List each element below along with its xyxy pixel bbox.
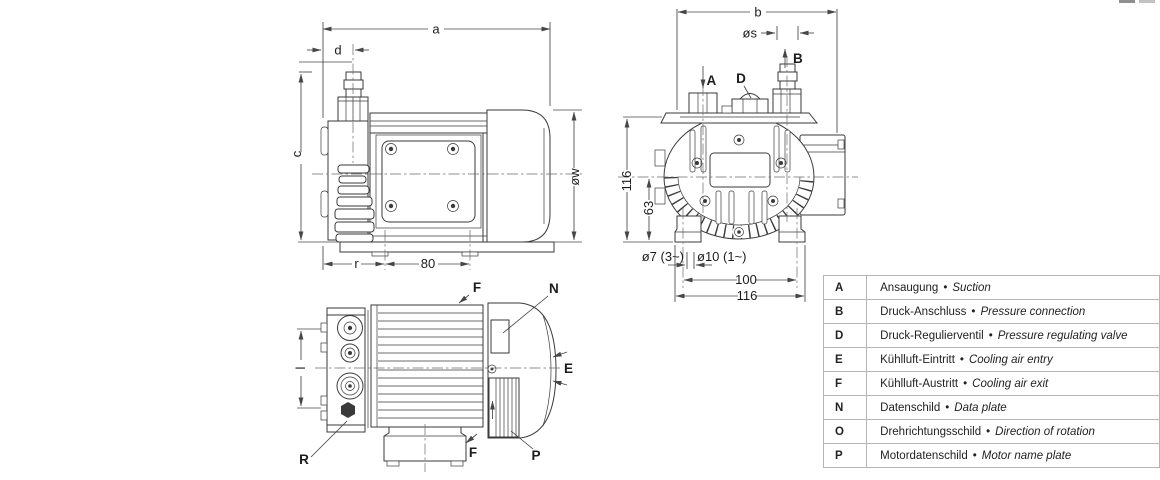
legend-de: Drehrichtungsschild [880,426,981,438]
dim-100-label: 100 [735,272,757,287]
dim-116v-label: 116 [619,171,634,192]
dimension-l: l [293,329,321,408]
legend-en: Data plate [954,402,1006,414]
mounting-plate [376,135,481,228]
legend-row: D Druck-Regulierventil•Pressure regulati… [824,324,1160,348]
dim-a-label: a [432,22,440,37]
motor-name-plate-area [489,378,519,437]
bullet-separator: • [971,306,975,318]
dim-d-label: d [334,43,341,58]
legend-key: E [824,348,867,372]
plate-screw [386,144,459,212]
dim-l-label: l [293,366,308,369]
callout-D: D [736,71,751,98]
legend-key: P [824,444,867,468]
label-F-top: F [473,280,481,295]
label-F-bottom: F [469,445,477,460]
top-view-drawing: F N E F P R l [280,275,602,480]
label-P: P [531,448,540,463]
legend-en: Cooling air entry [969,354,1053,366]
legend-row: P Motordatenschild•Motor name plate [824,444,1160,468]
dimension-80: 80 [386,256,469,271]
side-view-drawing: a d c øw r [285,5,615,290]
legend-en: Direction of rotation [995,426,1095,438]
legend-description: Drehrichtungsschild•Direction of rotatio… [867,420,1160,444]
label-E: E [564,361,573,376]
legend-en: Cooling air exit [972,378,1048,390]
legend-row: F Kühlluft-Austritt•Cooling air exit [824,372,1160,396]
cropped-ui-fragment [1119,0,1135,3]
legend-de: Kühlluft-Eintritt [880,354,955,366]
legend-de: Druck-Anschluss [880,306,966,318]
head-tab-left [655,150,665,166]
dimension-63: 63 [641,179,656,240]
dim-116h-label: 116 [737,288,758,303]
legend-de: Datenschild [880,402,940,414]
motor-side [483,110,550,242]
front-view-drawing: b øs A D B 116 [610,0,860,310]
regulating-valve [722,94,768,114]
legend-en: Motor name plate [982,450,1072,462]
dim-c-label: c [289,150,304,157]
dimension-d: d [299,43,369,73]
legend-en: Pressure regulating valve [998,330,1128,342]
callout-F-bottom: F [466,434,477,460]
legend-description: Druck-Anschluss•Pressure connection [867,300,1160,324]
dim-80-label: 80 [421,256,435,271]
legend-key: B [824,300,867,324]
callout-F-top: F [459,280,481,303]
legend-en: Suction [952,282,990,294]
pump-dimension-drawing-page: a d c øw r [0,0,1160,480]
label-D: D [736,71,746,86]
base-rail [340,242,554,256]
dimension-ow: øw [553,110,582,242]
label-A: A [707,73,717,88]
cropped-ui-fragment [1139,0,1155,3]
legend-de: Motordatenschild [880,450,968,462]
legend-table: A Ansaugung•Suction B Druck-Anschluss•Pr… [823,275,1160,468]
legend-description: Druck-Regulierventil•Pressure regulating… [867,324,1160,348]
legend-en: Pressure connection [980,306,1085,318]
dim-o7-label: ø7 (3~) [642,249,684,264]
callout-R: R [299,421,347,467]
legend-key: N [824,396,867,420]
bottom-foot [384,424,466,472]
bullet-separator: • [943,282,947,294]
legend-de: Ansaugung [880,282,938,294]
dim-os-label: øs [743,26,758,41]
bullet-separator: • [989,330,993,342]
legend-row: N Datenschild•Data plate [824,396,1160,420]
legend-key: D [824,324,867,348]
legend-row: B Druck-Anschluss•Pressure connection [824,300,1160,324]
bullet-separator: • [963,378,967,390]
pump-body-top [368,305,483,428]
legend-key: A [824,276,867,300]
bullet-separator: • [986,426,990,438]
dim-b-label: b [754,5,761,20]
legend-description: Kühlluft-Eintritt•Cooling air entry [867,348,1160,372]
legend-description: Motordatenschild•Motor name plate [867,444,1160,468]
legend-key: F [824,372,867,396]
dim-o10-label: ø10 (1~) [697,249,747,264]
bullet-separator: • [945,402,949,414]
dimension-os: øs [743,26,814,41]
legend-description: Datenschild•Data plate [867,396,1160,420]
label-N: N [549,281,559,296]
dim-63-label: 63 [641,201,656,215]
motor-top [488,303,556,438]
dim-r-label: r [354,256,359,271]
foot-hole-callouts: ø7 (3~) ø10 (1~) [642,249,747,269]
dimension-100: 100 [684,272,796,287]
legend-de: Kühlluft-Austritt [880,378,958,390]
legend-row: A Ansaugung•Suction [824,276,1160,300]
top-cover [661,113,817,123]
dim-ow-label: øw [567,168,582,186]
bullet-separator: • [973,450,977,462]
legend-key: O [824,420,867,444]
legend-description: Kühlluft-Austritt•Cooling air exit [867,372,1160,396]
head-tab-left [655,188,665,204]
legend-row: E Kühlluft-Eintritt•Cooling air entry [824,348,1160,372]
callout-A: A [703,66,717,88]
label-B: B [793,51,803,66]
legend-row: O Drehrichtungsschild•Direction of rotat… [824,420,1160,444]
legend-de: Druck-Regulierventil [880,330,984,342]
pump-body-side [370,113,487,242]
valve-head-top [321,308,365,432]
bullet-separator: • [960,354,964,366]
label-R: R [299,452,309,467]
legend-description: Ansaugung•Suction [867,276,1160,300]
